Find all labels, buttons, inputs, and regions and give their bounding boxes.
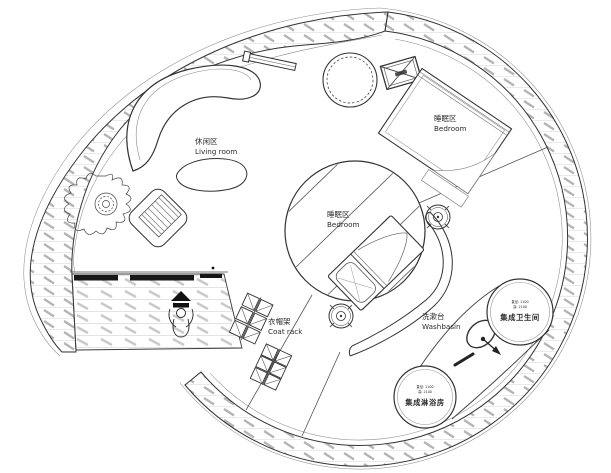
living-room-label-zh: 休闲区 bbox=[195, 136, 218, 146]
washbasin-label-zh: 洗漱台 bbox=[422, 311, 445, 321]
counter-mark bbox=[455, 354, 473, 365]
shower-pod-spec2: 高: 2100 bbox=[418, 389, 432, 394]
bedroom-upper-label-zh: 睡眠区 bbox=[434, 114, 457, 123]
curved-sofa bbox=[127, 65, 261, 171]
bedroom-center-label-en: Bedroom bbox=[327, 220, 360, 229]
round-table bbox=[323, 53, 377, 107]
bathroom-pod: 直径: 1100 高: 2100 集成卫生间 bbox=[487, 279, 553, 345]
entrance-deck bbox=[70, 267, 242, 350]
sliding-door-panel bbox=[130, 275, 194, 281]
label-living-room: 休闲区 Living room bbox=[195, 136, 237, 156]
shower-pod-spec1: 直径: 1100 bbox=[416, 384, 433, 389]
washbasin-label-en: Washbasin bbox=[422, 322, 461, 331]
wall-shelf bbox=[243, 51, 297, 72]
bathroom-pod-spec2: 高: 2100 bbox=[513, 304, 527, 309]
bedroom-upper-label-en: Bedroom bbox=[434, 124, 467, 133]
sliding-door-panel bbox=[74, 275, 118, 281]
reference-dot bbox=[212, 267, 215, 270]
target-symbol bbox=[426, 205, 450, 229]
floor-plan-drawing: 直径: 1100 高: 2100 集成卫生间 直径: 1100 高: 2100 … bbox=[0, 0, 611, 473]
coat-rack-unit bbox=[250, 343, 292, 391]
kidney-table bbox=[176, 158, 246, 191]
target-symbol bbox=[329, 304, 353, 328]
floor-plan-canvas: 直径: 1100 高: 2100 集成卫生间 直径: 1100 高: 2100 … bbox=[0, 0, 611, 473]
sliding-door-panel bbox=[200, 274, 222, 279]
living-room-label-en: Living room bbox=[195, 147, 237, 156]
label-washbasin: 洗漱台 Washbasin bbox=[422, 311, 461, 331]
bedroom-center-label-zh: 睡眠区 bbox=[327, 210, 350, 219]
bathroom-pod-label: 集成卫生间 bbox=[499, 313, 539, 322]
bathroom-pod-spec1: 直径: 1100 bbox=[511, 299, 528, 304]
coat-rack-label-en: Coat rack bbox=[268, 327, 303, 336]
coat-rack-label-zh: 衣帽架 bbox=[268, 316, 291, 326]
armchair bbox=[125, 185, 190, 250]
shower-pod-label: 集成淋浴房 bbox=[404, 398, 444, 407]
shower-pod: 直径: 1100 高: 2100 集成淋浴房 bbox=[394, 366, 456, 428]
